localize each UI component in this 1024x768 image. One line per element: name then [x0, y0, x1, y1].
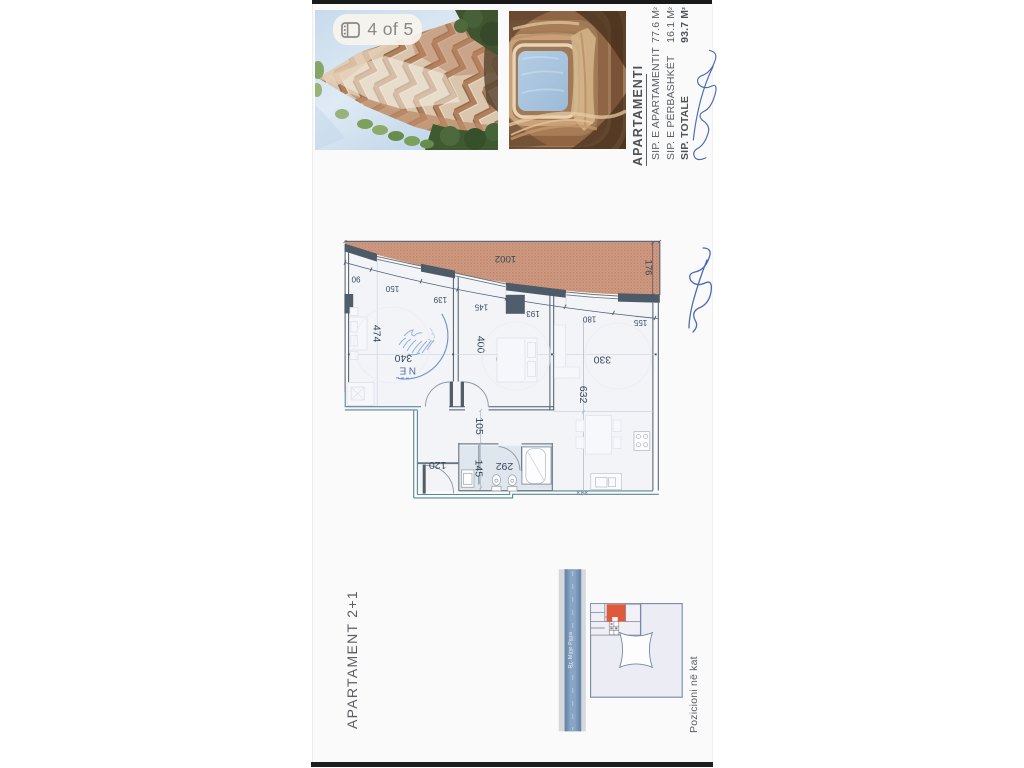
svg-text:155: 155 — [633, 318, 647, 327]
svg-text:145: 145 — [474, 303, 488, 312]
svg-text:340: 340 — [394, 352, 412, 364]
svg-text:120: 120 — [429, 459, 447, 471]
svg-text:105: 105 — [473, 417, 485, 435]
svg-text:180: 180 — [582, 315, 596, 324]
svg-text:176: 176 — [642, 259, 653, 275]
svg-text:139: 139 — [433, 295, 447, 304]
svg-text:90: 90 — [351, 275, 360, 284]
svg-text:292: 292 — [496, 460, 514, 472]
svg-text:NE: NE — [397, 365, 416, 376]
svg-text:145: 145 — [472, 460, 484, 478]
svg-text:632: 632 — [577, 386, 589, 404]
svg-text:193: 193 — [526, 309, 540, 318]
svg-text:1002: 1002 — [495, 253, 516, 264]
svg-text:Rr. Mine Peza: Rr. Mine Peza — [568, 632, 574, 668]
svg-text:474: 474 — [370, 325, 382, 343]
svg-text:330: 330 — [593, 354, 611, 366]
svg-text:150: 150 — [385, 284, 399, 293]
